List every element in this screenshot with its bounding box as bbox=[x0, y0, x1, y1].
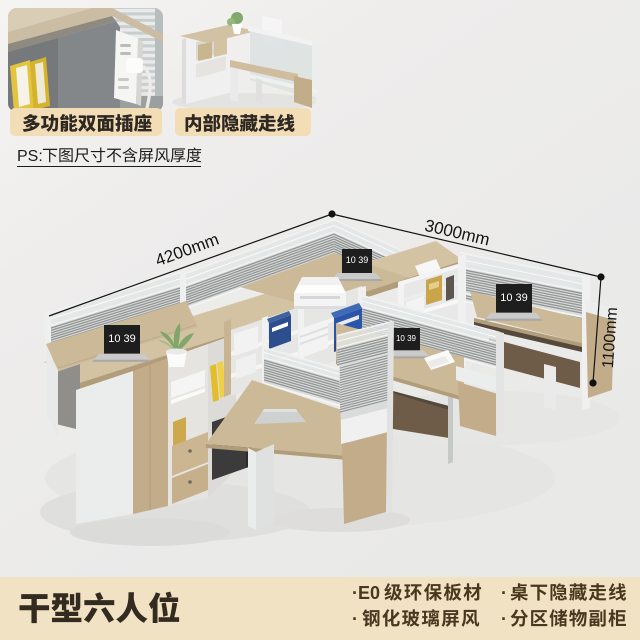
svg-text:10 39: 10 39 bbox=[346, 255, 369, 265]
svg-text:10 39: 10 39 bbox=[396, 334, 417, 343]
svg-text:·: · bbox=[501, 609, 507, 629]
svg-text:PS:: PS: bbox=[17, 148, 43, 165]
svg-text:·: · bbox=[501, 583, 507, 603]
svg-text:·E0: ·E0 bbox=[352, 583, 380, 603]
svg-text:·: · bbox=[352, 609, 358, 629]
svg-text:10 39: 10 39 bbox=[108, 333, 136, 345]
svg-text:10 39: 10 39 bbox=[500, 292, 528, 304]
